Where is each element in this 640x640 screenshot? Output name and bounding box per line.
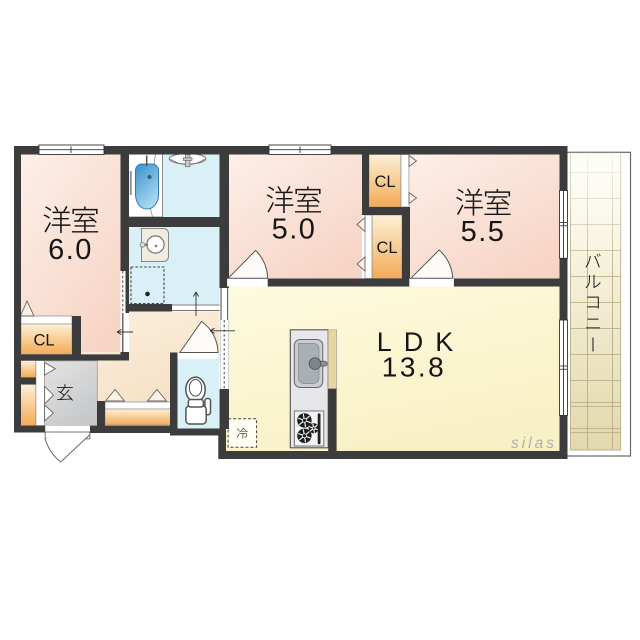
svg-text:6.0: 6.0 — [48, 234, 93, 266]
svg-text:CL: CL — [33, 332, 54, 350]
svg-text:5.5: 5.5 — [461, 216, 506, 248]
svg-text:CL: CL — [376, 239, 397, 257]
svg-text:silas: silas — [511, 435, 557, 452]
svg-text:CL: CL — [374, 173, 395, 191]
svg-text:5.0: 5.0 — [272, 214, 317, 246]
svg-text:13.8: 13.8 — [382, 352, 447, 383]
